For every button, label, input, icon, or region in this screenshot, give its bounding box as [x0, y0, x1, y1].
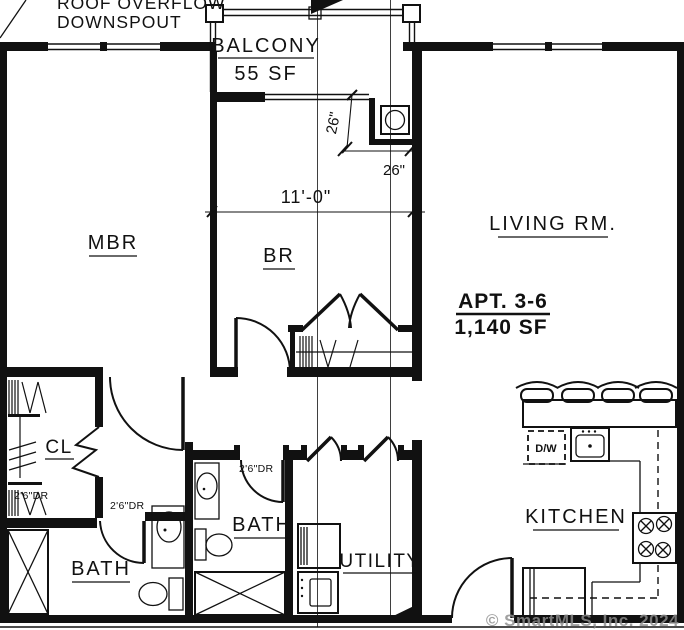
windows — [48, 44, 602, 100]
washer-icon — [298, 524, 340, 568]
dishwasher-label: D/W — [535, 443, 557, 455]
cl-bifold-door — [73, 427, 99, 477]
door-label-closet: 2'6"DR — [14, 490, 48, 502]
pipe-chase — [381, 106, 409, 134]
mbr-door — [110, 377, 183, 450]
door-label-bath1: 2'6"DR — [110, 500, 144, 512]
br-closet-rod-icon — [296, 336, 412, 368]
room-label-br: BR — [263, 245, 295, 267]
room-label-living: LIVING RM. — [489, 213, 617, 235]
room-label-kitchen: KITCHEN — [525, 506, 627, 528]
dimension-26-horizontal — [338, 145, 415, 156]
floor-plan-canvas: ROOF OVERFLOW DOWNSPOUT BALCONY 55 SF MB… — [0, 0, 684, 630]
utility-fixtures — [298, 524, 340, 613]
utility-door-2 — [364, 437, 398, 461]
sink-icon — [195, 463, 219, 519]
toilet-icon — [195, 529, 232, 560]
door-label-bath2: 2'6"DR — [239, 463, 273, 475]
utility-door-1 — [307, 437, 341, 461]
entry-door — [452, 558, 512, 618]
kitchen-sink-icon — [571, 428, 609, 461]
bathtub-icon — [8, 530, 48, 614]
room-label-bath2: BATH — [232, 514, 292, 536]
roof-note-line2: DOWNSPOUT — [57, 12, 182, 32]
balcony-post — [403, 5, 420, 22]
dim-bedroom-width: 11'-0" — [281, 187, 332, 207]
leader-line — [0, 0, 26, 38]
room-label-bath1: BATH — [71, 558, 131, 580]
kitchen-fixtures — [516, 382, 677, 618]
toilet-icon — [139, 578, 183, 610]
counter-edges — [523, 461, 640, 615]
section-marker-icon — [311, 0, 343, 14]
room-label-balcony: BALCONY — [211, 35, 321, 57]
shower-icon — [195, 572, 285, 615]
bath1-door — [100, 521, 144, 563]
room-label-cl: CL — [45, 437, 72, 458]
bath2-fixtures — [195, 463, 285, 615]
br-door — [236, 318, 290, 372]
dim-chase-width: 26" — [383, 162, 405, 179]
br-closet-double-doors — [302, 294, 398, 330]
watermark: © SmartMLS, Inc. 2024 — [486, 611, 679, 630]
floor-plan-drawing: ROOF OVERFLOW DOWNSPOUT BALCONY 55 SF MB… — [0, 0, 684, 630]
room-label-utility: UTILITY — [339, 551, 420, 572]
apartment-name: APT. 3-6 — [458, 290, 548, 313]
room-label-mbr: MBR — [88, 232, 138, 254]
dim-chase-depth: 26" — [323, 111, 344, 136]
room-area-balcony: 55 SF — [234, 63, 297, 85]
bar-counter — [523, 400, 676, 427]
stove-icon — [633, 513, 676, 563]
apartment-area: 1,140 SF — [454, 316, 547, 339]
dimension-11-0 — [205, 206, 425, 217]
